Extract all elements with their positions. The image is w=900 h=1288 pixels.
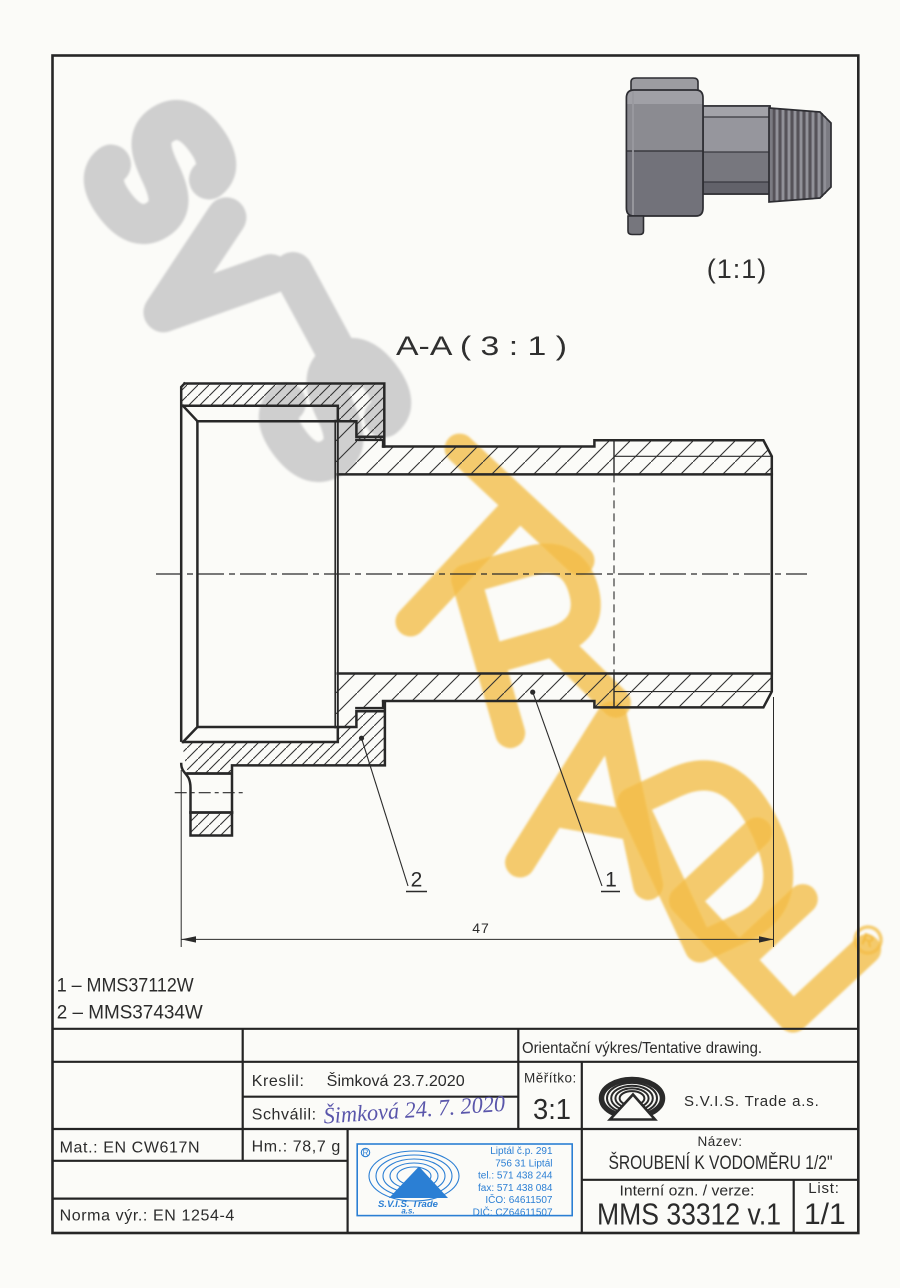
svg-text:1 – MMS37112W: 1 – MMS37112W [57,976,194,997]
svg-text:Hm.: 78,7 g: Hm.: 78,7 g [252,1139,341,1156]
svg-text:ŠROUBENÍ K VODOMĚRU 1/2": ŠROUBENÍ K VODOMĚRU 1/2" [609,1152,833,1174]
svg-text:2: 2 [411,869,423,892]
svg-text:3:1: 3:1 [533,1094,571,1126]
svg-text:47: 47 [472,920,490,936]
svg-text:Kreslil:: Kreslil: [252,1073,305,1090]
svg-text:Název:: Název: [697,1134,742,1149]
svg-text:IČO: 64611507: IČO: 64611507 [485,1193,553,1206]
svg-text:1: 1 [605,869,617,892]
svg-text:Měřítko:: Měřítko: [524,1071,577,1086]
svg-text:fax: 571 438 084: fax: 571 438 084 [478,1183,553,1194]
svg-text:Mat.: EN CW617N: Mat.: EN CW617N [60,1140,201,1157]
svg-text:A-A ( 3 : 1 ): A-A ( 3 : 1 ) [396,331,567,361]
svg-text:(1:1): (1:1) [707,254,768,284]
svg-text:List:: List: [808,1180,840,1197]
svg-text:DIČ: CZ64611507: DIČ: CZ64611507 [473,1206,553,1219]
svg-text:Šimková 23.7.2020: Šimková 23.7.2020 [327,1071,465,1090]
svg-text:Schválil:: Schválil: [252,1107,317,1124]
svg-text:S.V.I.S. Trade a.s.: S.V.I.S. Trade a.s. [684,1093,820,1110]
svg-text:Liptál č.p. 291: Liptál č.p. 291 [490,1146,553,1157]
svg-text:R: R [363,1149,369,1158]
svg-text:tel.: 571 438 244: tel.: 571 438 244 [478,1171,553,1182]
svg-text:Norma výr.: EN 1254-4: Norma výr.: EN 1254-4 [60,1208,235,1225]
svg-text:756 31 Liptál: 756 31 Liptál [495,1158,552,1169]
svg-text:MMS 33312 v.1: MMS 33312 v.1 [597,1197,781,1232]
svg-text:2 – MMS37434W: 2 – MMS37434W [57,1002,203,1023]
svg-text:a.s.: a.s. [401,1207,414,1216]
svg-text:1/1: 1/1 [804,1198,846,1231]
svg-text:Orientační výkres/Tentative dr: Orientační výkres/Tentative drawing. [522,1040,762,1057]
